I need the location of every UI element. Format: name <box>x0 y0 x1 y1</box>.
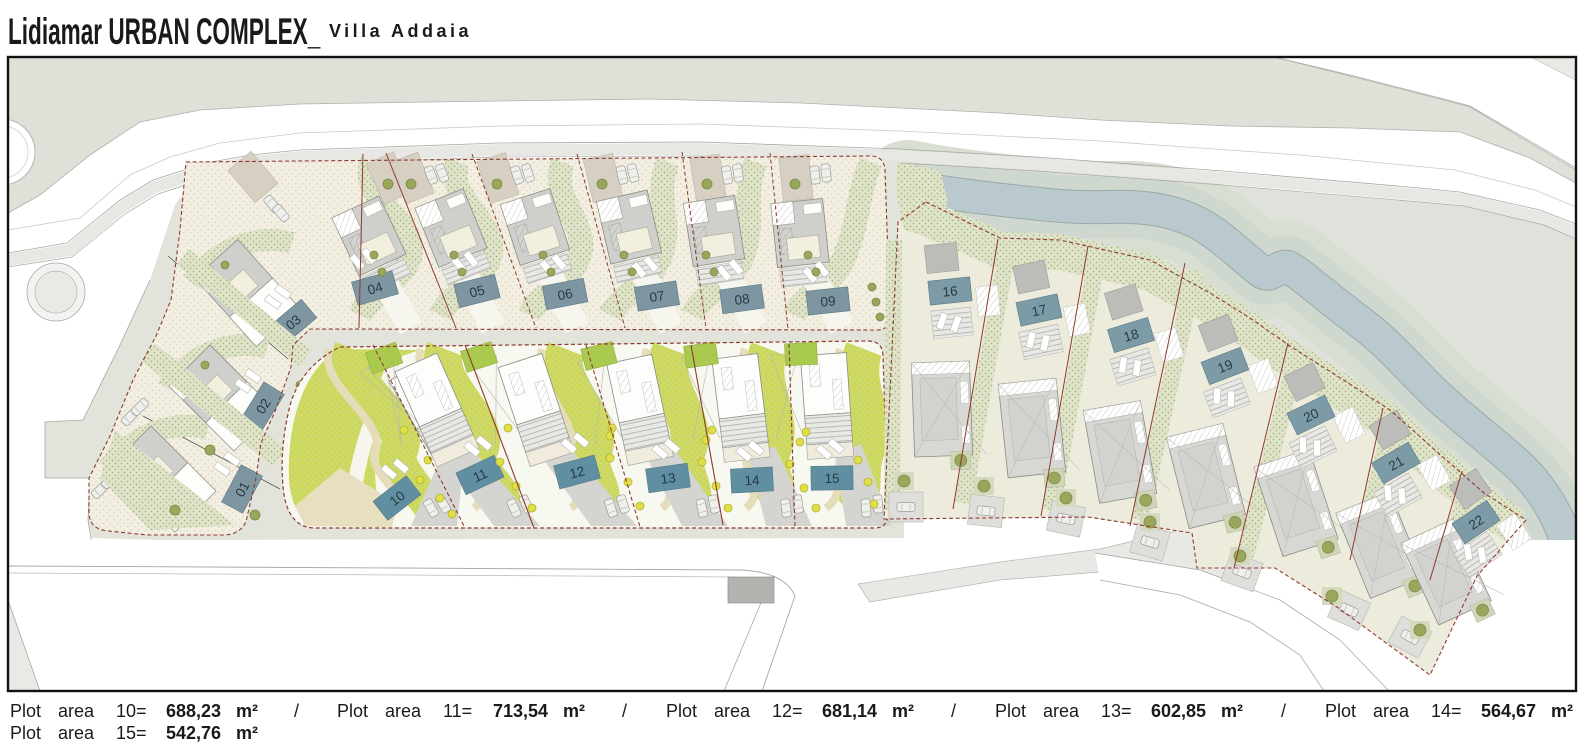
svg-text:14: 14 <box>744 473 760 489</box>
svg-text:17: 17 <box>1030 302 1048 320</box>
svg-text:06: 06 <box>556 286 574 304</box>
svg-text:08: 08 <box>734 291 751 308</box>
svg-text:07: 07 <box>648 288 665 305</box>
svg-text:09: 09 <box>820 293 837 309</box>
svg-text:16: 16 <box>942 283 959 299</box>
svg-text:13: 13 <box>660 470 677 487</box>
svg-text:15: 15 <box>824 471 839 486</box>
